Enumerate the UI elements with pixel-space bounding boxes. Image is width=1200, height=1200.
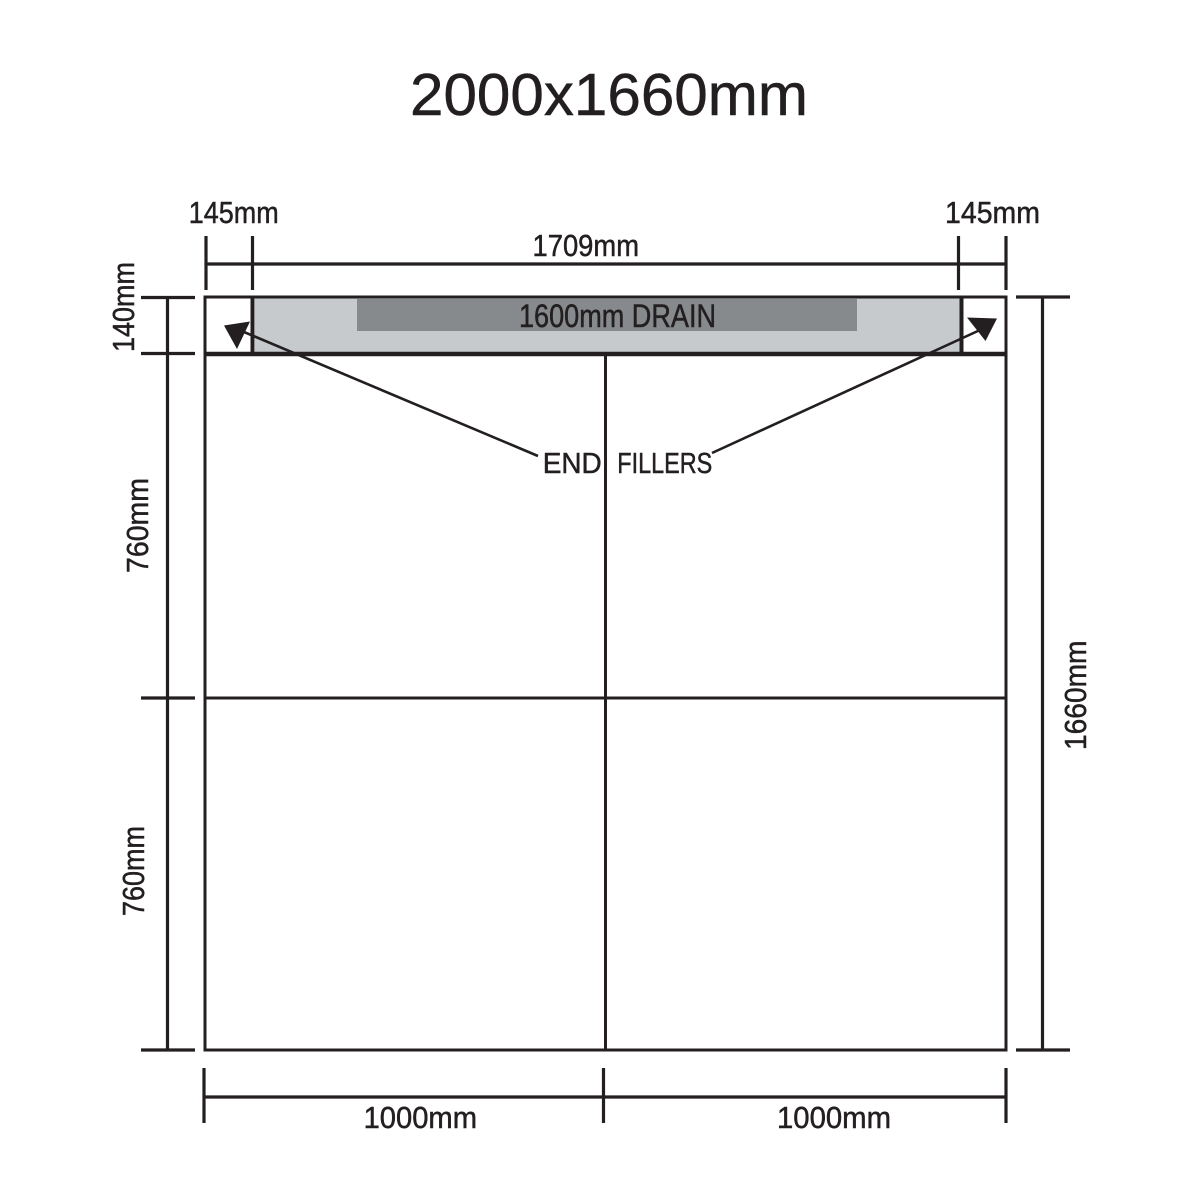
svg-text:1600mm DRAIN: 1600mm DRAIN xyxy=(519,298,716,334)
svg-text:1000mm: 1000mm xyxy=(364,1100,477,1135)
svg-text:FILLERS: FILLERS xyxy=(617,448,712,480)
svg-text:760mm: 760mm xyxy=(120,478,155,573)
svg-text:END: END xyxy=(543,448,602,480)
svg-text:145mm: 145mm xyxy=(945,195,1040,230)
svg-text:140mm: 140mm xyxy=(106,262,141,352)
svg-text:2000x1660mm: 2000x1660mm xyxy=(410,62,808,128)
svg-text:1709mm: 1709mm xyxy=(533,228,640,263)
svg-text:1000mm: 1000mm xyxy=(777,1100,891,1135)
svg-text:1660mm: 1660mm xyxy=(1058,641,1093,751)
svg-text:145mm: 145mm xyxy=(189,195,279,230)
svg-text:760mm: 760mm xyxy=(116,826,151,916)
